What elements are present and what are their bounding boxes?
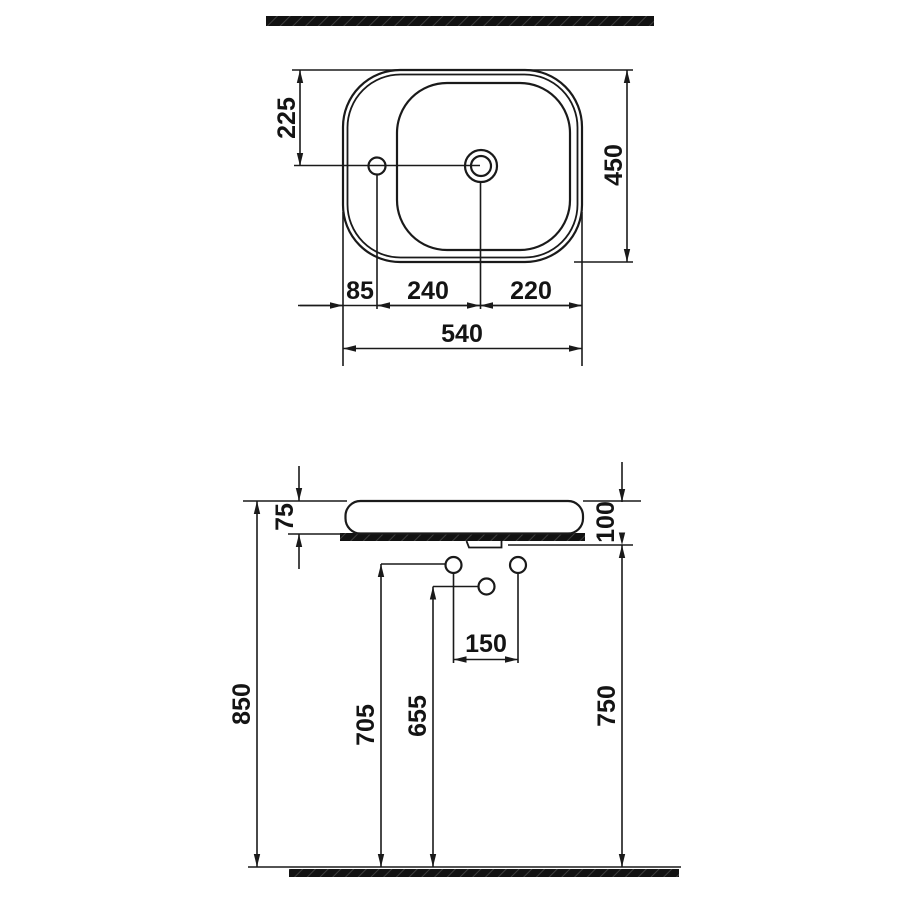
dim-label-225: 225: [273, 97, 301, 139]
dim-label-150: 150: [465, 630, 507, 658]
background: [0, 0, 900, 900]
dim-label-85: 85: [346, 277, 374, 305]
washbasin-drawing: 225 450 85 240 220 540: [0, 0, 900, 900]
dim-label-240: 240: [407, 277, 449, 305]
supply-hole-left: [446, 557, 462, 573]
dim-label-850: 850: [228, 683, 256, 725]
dim-label-75: 75: [271, 503, 299, 531]
wall-section-bar: [266, 16, 654, 26]
dim-label-540: 540: [441, 320, 483, 348]
floor-section-bar: [289, 869, 679, 877]
dim-label-705: 705: [352, 704, 380, 746]
waste-hole-center: [479, 579, 495, 595]
technical-drawing-canvas: 225 450 85 240 220 540: [0, 0, 900, 900]
dim-label-450: 450: [600, 144, 628, 186]
dim-label-655: 655: [404, 695, 432, 737]
dim-label-100: 100: [592, 501, 620, 543]
dim-label-750: 750: [593, 685, 621, 727]
dim-label-220: 220: [510, 277, 552, 305]
supply-hole-right: [510, 557, 526, 573]
